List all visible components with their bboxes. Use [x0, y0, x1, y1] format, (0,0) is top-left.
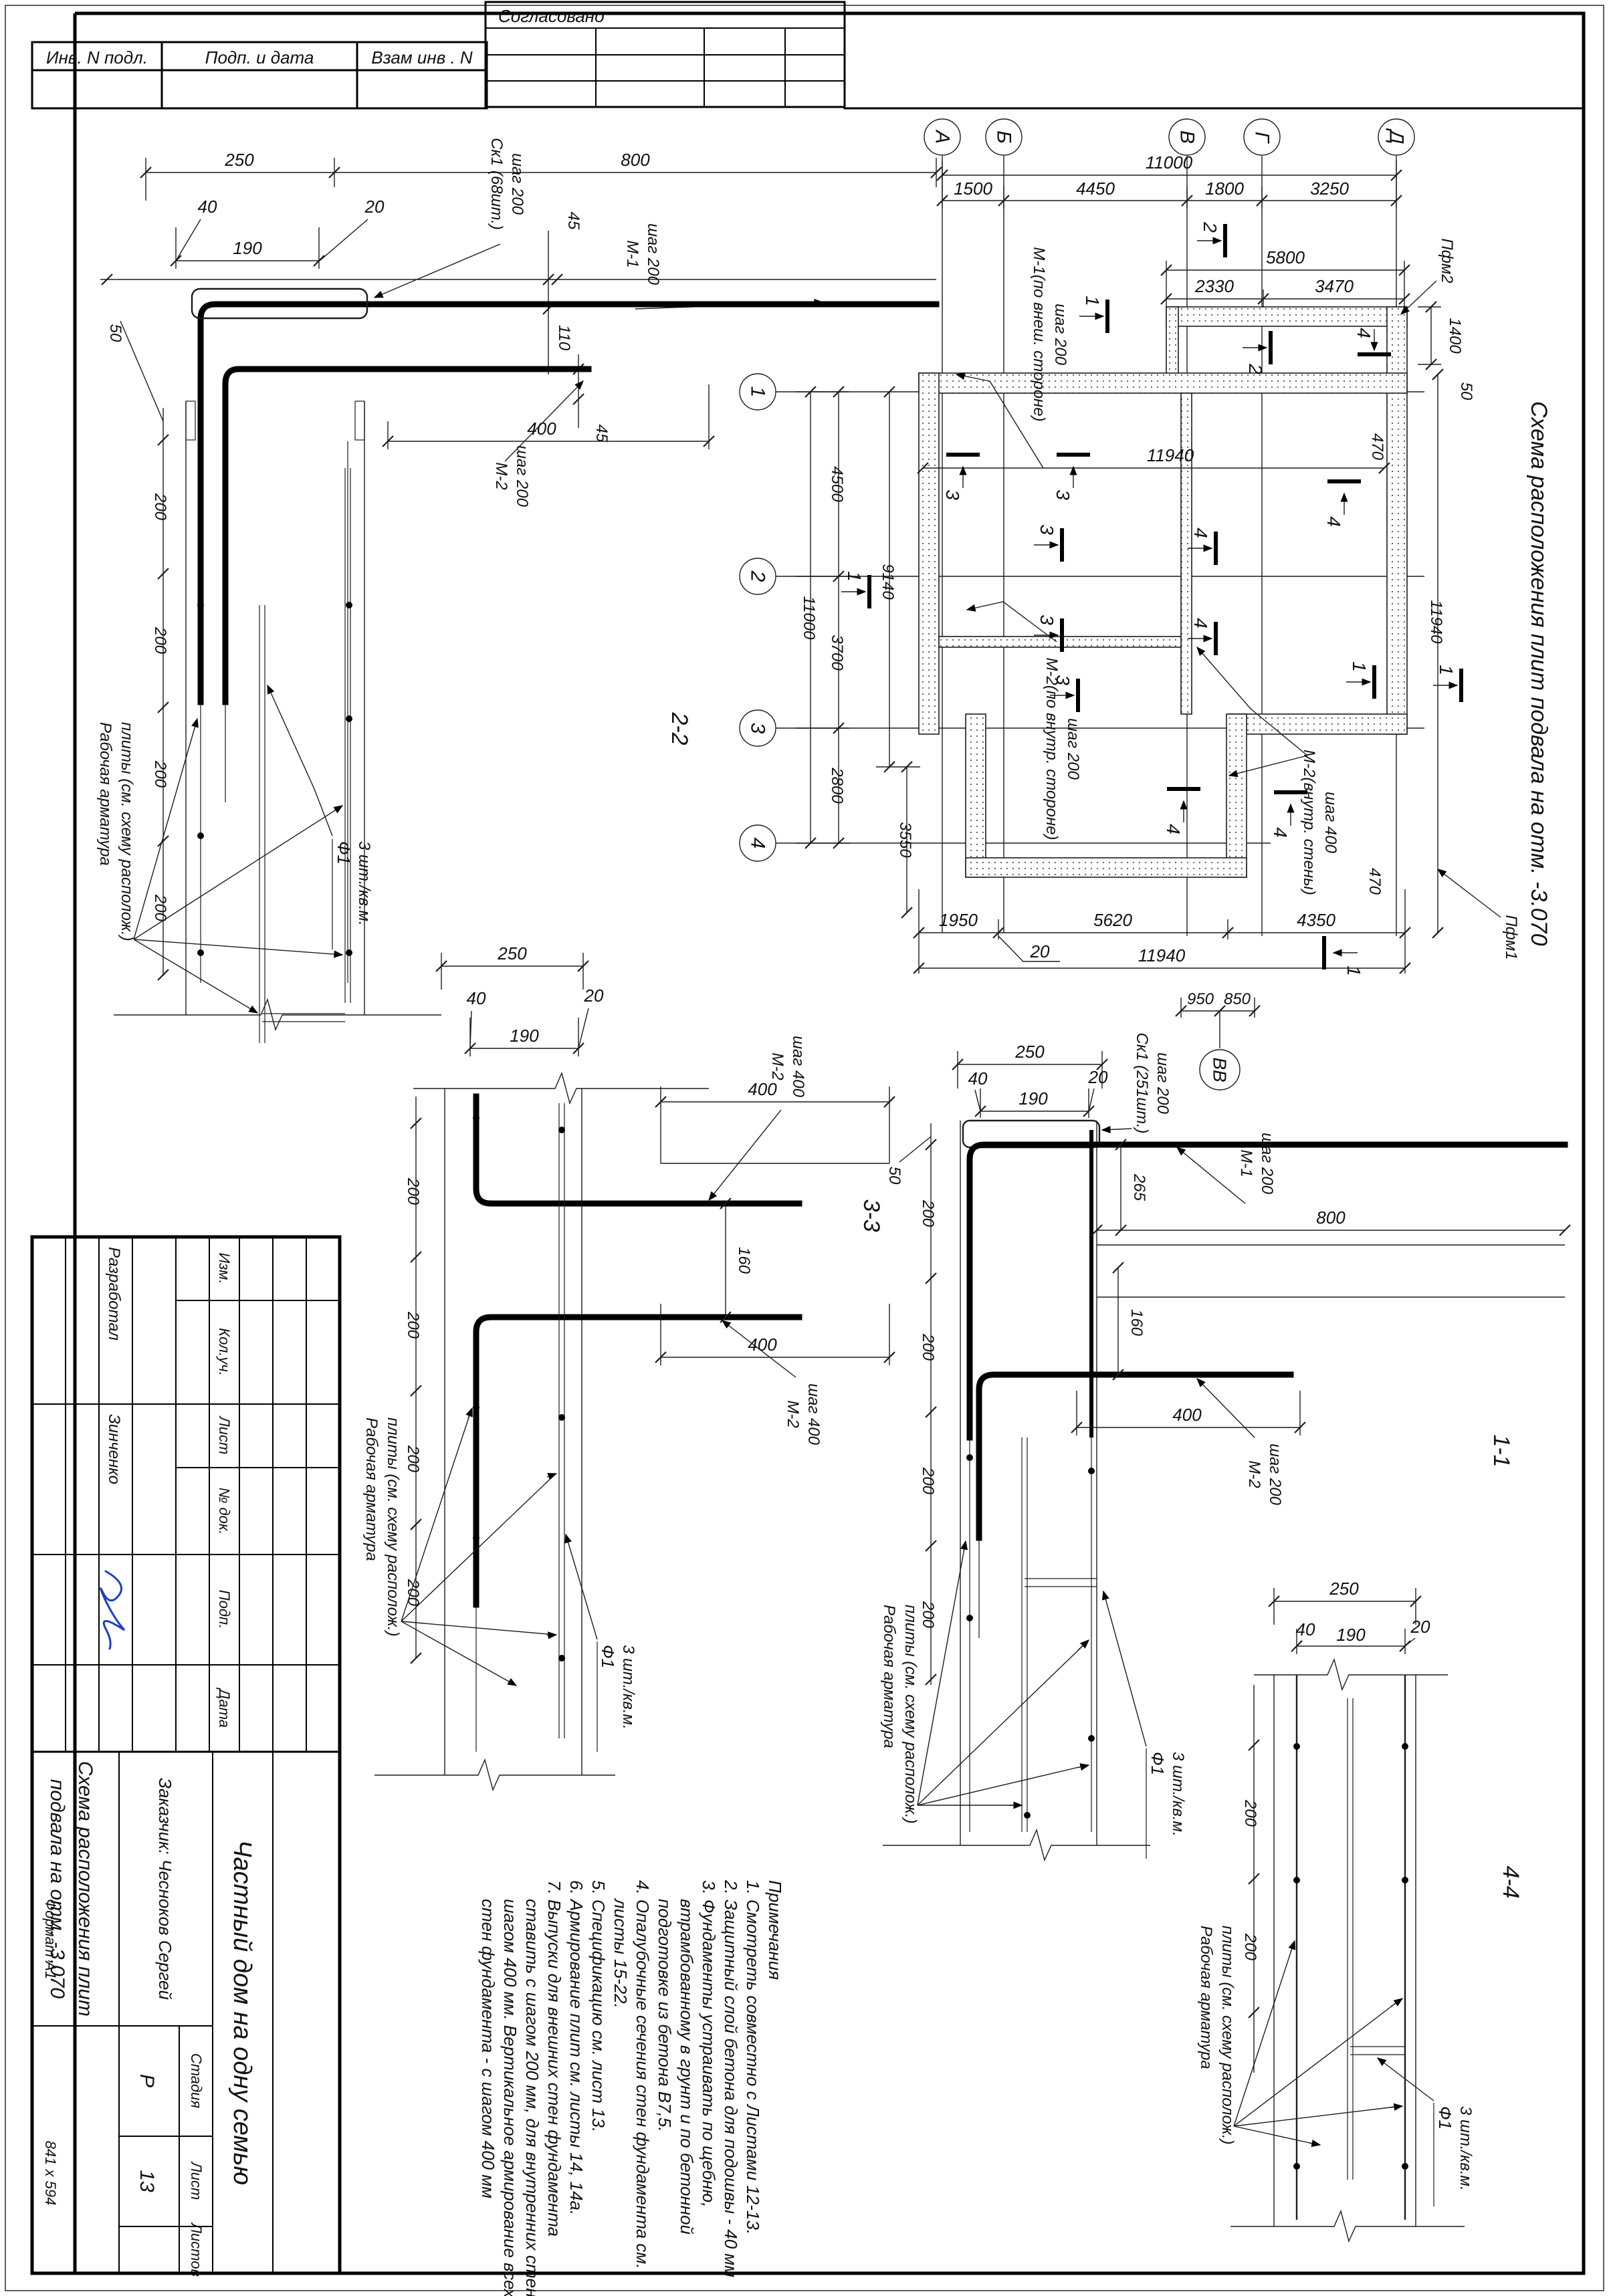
- drawing-sheet: Инв. N подл. Подп. и дата Взам инв . N С…: [0, 0, 1609, 2296]
- flag-2-block: 2: [1243, 331, 1271, 374]
- s33-m2l-line2: шаг 400: [804, 1383, 823, 1445]
- flag-3-c: 3: [1034, 524, 1062, 562]
- s44-f1qty: 3 шт./кв.м.: [1457, 2106, 1475, 2191]
- s11-bottom-labels: Рабочая арматура плиты (см. схему распол…: [880, 1541, 1187, 1859]
- s11-rab-line2: плиты (см. схему располож.): [901, 1605, 920, 1824]
- dim-left-seg3: 2800: [828, 767, 846, 804]
- notes-line: 1. Смотреть совместно с Листами 12-13.: [743, 1880, 763, 2234]
- dim-bot-seg1: 1950: [939, 910, 978, 930]
- s11-title: 1-1: [1489, 1434, 1514, 1467]
- s33-bottom-labels: Рабочая арматура плиты (см. схему распол…: [362, 1408, 637, 1752]
- section-2-2: 250 800 40 20 190 Ск1 (68шт.) шаг 200 М-…: [96, 138, 942, 1043]
- notes-block: Примечания 1. Смотреть совместно с Листа…: [478, 1879, 785, 2296]
- s33-rab-line2: плиты (см. схему располож.): [384, 1417, 402, 1637]
- s22-200d: 200: [151, 894, 169, 922]
- plan-dims-left: 11000 4500 3700 2800 9140 3550: [796, 386, 920, 918]
- section-4-4: 250 40 20 190 200 200 Рабочая арматура п…: [1197, 1579, 1523, 2241]
- s33-dim-160: 160: [735, 1247, 753, 1274]
- s11-dim-160: 160: [1128, 1309, 1146, 1337]
- s11-m1-line2: шаг 200: [1258, 1133, 1276, 1194]
- s22-m2-line1: М-2: [492, 462, 510, 489]
- s22-dim-20: 20: [364, 197, 385, 217]
- s33-200c: 200: [404, 1445, 422, 1473]
- notes-line: ставить с шагом 200 мм, для внутренних с…: [522, 1899, 542, 2296]
- flag-num: 3: [1053, 489, 1073, 500]
- dim-top-inner2: 3470: [1315, 276, 1354, 296]
- m1-ext-line2: шаг 200: [1051, 304, 1069, 365]
- s22-dim-50: 50: [106, 324, 124, 342]
- flag-num: 1: [1344, 965, 1364, 976]
- s44-f1: Ф1: [1435, 2106, 1455, 2130]
- s33-chain: 200 200 200 200: [404, 1097, 422, 1663]
- s44-200a: 200: [1241, 1799, 1259, 1827]
- s22-dims-top: 250 800 40 20 190: [140, 150, 942, 269]
- attribute-strips: Инв. N подл. Подп. и дата Взам инв . N: [32, 42, 487, 108]
- tb-sheets-label: Листов: [188, 2222, 205, 2277]
- dim-right-total: 11940: [1427, 600, 1445, 645]
- plan-vv-bubble: ВВ: [1210, 1057, 1230, 1082]
- s11-dim-250: 250: [1014, 1042, 1045, 1062]
- s11-dim-50: 50: [885, 1167, 903, 1185]
- strip-podp-label: Подп. и дата: [205, 47, 314, 68]
- plan-dims-right: 1400 50 11940 470 470: [1366, 302, 1475, 938]
- tb-doc-line2: подвала на отм. -3,070: [46, 1779, 68, 1999]
- s22-sk1-line1: Ск1 (68шт.): [488, 138, 506, 230]
- section-3-3: 250 40 20 190 400 400 160 М-2 шаг 400 М-…: [362, 943, 895, 1790]
- s22-200b: 200: [151, 626, 169, 655]
- m2-wall-line2: шаг 400: [1321, 792, 1339, 853]
- dim-bot-850: 850: [1224, 990, 1251, 1008]
- dim-left-seg2: 3700: [828, 635, 846, 671]
- s11-200a: 200: [919, 1199, 937, 1228]
- size-label: 841 х 594: [42, 2141, 59, 2206]
- approval-table: Согласовано: [486, 2, 845, 107]
- flag-num: 4: [1354, 328, 1374, 338]
- s11-f1: Ф1: [1148, 1752, 1168, 1775]
- s22-dim-190: 190: [233, 238, 262, 258]
- s33-geometry: [374, 1073, 799, 1790]
- s33-ground: [374, 1760, 615, 1790]
- m2-wall-line1: М-2(внутр. стены): [1300, 750, 1318, 895]
- s33-f1: Ф1: [598, 1645, 618, 1668]
- axis-row-4: 4: [747, 838, 769, 849]
- s22-bottom-labels: Рабочая арматура плиты (см. схему распол…: [96, 685, 373, 1013]
- flag-num: 1: [1349, 661, 1370, 672]
- s22-m1-line1: М-1: [623, 240, 641, 267]
- s44-dim-190: 190: [1336, 1625, 1366, 1645]
- flag-num: 4: [1270, 827, 1291, 838]
- dim-right-470a: 470: [1368, 433, 1386, 461]
- flag-num: 2: [1245, 363, 1266, 374]
- dim-left-total: 11000: [800, 596, 818, 641]
- s33-200b: 200: [404, 1311, 422, 1339]
- s44-bottom-labels: Рабочая арматура плиты (см. схему распол…: [1197, 1926, 1475, 2206]
- s33-title: 3-3: [859, 1199, 884, 1232]
- notes-line: листы 15-22.: [611, 1898, 631, 2008]
- notes-line: шагом 400 мм. Вертикальное армирование в…: [500, 1899, 520, 2296]
- dim-left-seg1: 4500: [828, 466, 846, 502]
- notes-line: 6. Армирование плит см. листы 14, 14а.: [566, 1880, 586, 2215]
- s22-dim-45b: 45: [593, 425, 611, 443]
- dim-right-470b: 470: [1366, 868, 1384, 895]
- dim-top-inner1: 2330: [1194, 276, 1234, 296]
- s11-200d: 200: [919, 1601, 937, 1629]
- s11-dims-top: 250 40 20 190 Ск1 (251шт.) шаг 200 50: [885, 1032, 1172, 1185]
- s22-dim-40: 40: [198, 197, 217, 217]
- s11-200b: 200: [919, 1333, 937, 1361]
- s11-dim-400: 400: [1172, 1405, 1202, 1425]
- s44-200b: 200: [1241, 1933, 1259, 1961]
- s44-ground: [1230, 2211, 1465, 2241]
- flag-num: 3: [1037, 614, 1057, 625]
- s11-dim-40: 40: [968, 1068, 988, 1088]
- s11-geometry: [883, 1121, 1565, 1860]
- plan-pfm1-label: Пфм1: [1502, 915, 1520, 959]
- strip-vzam-label: Взам инв . N: [371, 47, 473, 68]
- approval-title: Согласовано: [498, 6, 605, 26]
- s22-dim-250: 250: [224, 150, 254, 170]
- dim-bot-950: 950: [1187, 990, 1214, 1008]
- axis-row-1: 1: [747, 386, 769, 398]
- notes-line: 2. Защитный слой бетона для подошвы - 40…: [721, 1879, 741, 2277]
- axis-row-3: 3: [747, 723, 769, 734]
- s44-break-top: [1254, 1659, 1448, 1690]
- s11-dim-800: 800: [1316, 1208, 1346, 1228]
- flag-num: 4: [1163, 824, 1184, 834]
- tb-project-name: Частный дом на одну семью: [228, 1840, 256, 2185]
- s44-dim-250: 250: [1329, 1579, 1359, 1599]
- s33-dim-190: 190: [510, 1026, 539, 1046]
- flag-num: 3: [1053, 675, 1073, 685]
- flag-4-f: 4: [1163, 789, 1200, 834]
- tb-doc-line1: Схема расположения плит: [74, 1761, 96, 2017]
- axis-row-2: 2: [747, 570, 769, 582]
- notes-line: стен фундамента - с шагом 400 мм: [478, 1899, 498, 2198]
- s33-dims-top: 250 40 20 190: [436, 943, 604, 1056]
- s11-dim-190: 190: [1018, 1088, 1048, 1109]
- drawing-canvas: Инв. N подл. Подп. и дата Взам инв . N С…: [0, 0, 1609, 2296]
- tb-stage-value: Р: [136, 2074, 158, 2087]
- dim-top-inner: 5800: [1266, 247, 1305, 267]
- s22-rab-line1: Рабочая арматура: [96, 722, 114, 866]
- axis-col-a: А: [932, 129, 954, 144]
- dim-right-1400: 1400: [1446, 318, 1464, 354]
- s22-title: 2-2: [667, 711, 692, 745]
- plan-axis-row-bubbles: 1 2 3 4: [740, 374, 776, 861]
- flag-1-bottom: 1: [1324, 936, 1364, 976]
- tb-stage-label: Стадия: [188, 2053, 205, 2109]
- dim-top-total: 11000: [1146, 152, 1193, 173]
- s44-rab-line2: плиты (см. схему располож.): [1218, 1926, 1237, 2145]
- s22-dim-800: 800: [621, 150, 650, 170]
- s22-rab-line2: плиты (см. схему располож.): [118, 722, 136, 941]
- s22-dim-110: 110: [555, 325, 573, 351]
- flag-4-block: 4: [1354, 328, 1391, 354]
- dim-top-seg2: 4450: [1076, 179, 1115, 199]
- s11-sk1-line2: шаг 200: [1154, 1052, 1172, 1114]
- s33-bar-m2-upper: [476, 1097, 799, 1203]
- s22-f1qty: 3 шт./кв.м.: [355, 841, 373, 926]
- plan-title: Схема расположения плит подвала на отм. …: [1526, 401, 1551, 946]
- s44-title: 4-4: [1498, 1865, 1523, 1898]
- s22-labels: Ск1 (68шт.) шаг 200 М-1 шаг 200 45 110 4…: [106, 138, 823, 443]
- s33-dim-40: 40: [467, 988, 486, 1008]
- s11-dim-265: 265: [1130, 1173, 1148, 1201]
- s11-bar-m2: [979, 1375, 1291, 1538]
- flag-num: 3: [942, 489, 963, 500]
- s11-chain: 200 200 200 200: [919, 1123, 937, 1685]
- plan-pfm2-label: Пфм2: [1438, 238, 1456, 283]
- s44-rab-line1: Рабочая арматура: [1197, 1926, 1215, 2069]
- dim-top-seg3: 1800: [1205, 179, 1244, 199]
- s44-dim-40: 40: [1296, 1619, 1315, 1639]
- flag-num: 4: [1190, 618, 1211, 628]
- tb-col-podp: Подп.: [216, 1590, 233, 1629]
- flag-2-top: 2: [1197, 221, 1225, 257]
- dim-bot-20: 20: [1030, 941, 1050, 961]
- s11-ground: [883, 1830, 1150, 1860]
- s22-m1-line2: шаг 200: [644, 223, 662, 285]
- axis-col-g: Г: [1251, 132, 1273, 144]
- m1-ext-line1: М-1(по внеш. стороне): [1030, 247, 1048, 421]
- dim-top-seg1: 1500: [954, 179, 992, 199]
- flag-num: 3: [1037, 524, 1057, 535]
- s33-200d: 200: [404, 1579, 422, 1607]
- s33-200a: 200: [404, 1177, 422, 1206]
- s11-dim-20: 20: [1088, 1067, 1108, 1087]
- notes-line: подготовке из бетона В7,5.: [655, 1899, 675, 2132]
- s44-geometry: [1230, 1659, 1465, 2241]
- s22-f1: Ф1: [334, 841, 354, 865]
- flag-3-b: 3: [1053, 455, 1090, 500]
- tb-col-ndok: № док.: [216, 1488, 233, 1535]
- title-block: Изм. Кол.уч. Лист № док. Подп. Дата Разр…: [32, 1237, 340, 2277]
- s22-400-label: 400: [527, 419, 556, 439]
- flag-num: 1: [844, 571, 865, 582]
- s33-dim-250: 250: [497, 943, 527, 963]
- dim-left-3550: 3550: [896, 822, 914, 858]
- dim-bot-seg3: 4350: [1297, 910, 1335, 930]
- s22-200a: 200: [151, 493, 169, 521]
- notes-line: 7. Выпуски для внешних стен фундамента: [544, 1880, 564, 2236]
- s33-400-upper: 400: [748, 1079, 777, 1099]
- flag-3-a: 3: [942, 455, 980, 500]
- flag-4-c: 4: [1323, 481, 1361, 527]
- s11-rab-line1: Рабочая арматура: [880, 1605, 898, 1748]
- tb-col-izm: Изм.: [216, 1253, 233, 1284]
- dim-right-50: 50: [1457, 382, 1475, 400]
- s33-m2l-line1: М-2: [784, 1400, 802, 1427]
- plan-dims-top: 11000 1500 4450 1800 3250 5800 2330 3470: [937, 152, 1410, 308]
- dim-inner-11940: 11940: [1147, 445, 1194, 465]
- tb-sheet-value: 13: [136, 2170, 158, 2192]
- notes-line: 4. Опалубочные сечения стен фундамента с…: [633, 1880, 653, 2269]
- plan-axis-col-bubbles: А Б В Г Д: [924, 119, 1414, 155]
- flag-1-right1: 1: [1346, 661, 1374, 699]
- tb-developed-name: Зинченко: [105, 1414, 123, 1484]
- s22-dim-45a: 45: [564, 212, 582, 230]
- plan-view: А Б В Г Д 1 2 3 4 11000 1500 4450 1800 3…: [740, 119, 1551, 1090]
- flag-1-left: 1: [841, 571, 869, 608]
- dim-left-9140: 9140: [879, 564, 897, 600]
- tb-sheet-label: Лист: [188, 2161, 205, 2200]
- s22-bar-m1: [201, 304, 936, 702]
- s44-dim-20: 20: [1410, 1617, 1430, 1637]
- notes-line: 5. Спецификацию см. лист 13.: [588, 1880, 609, 2132]
- s22-chain: 200 200 200 200: [151, 408, 169, 980]
- tb-col-data: Дата: [216, 1687, 233, 1728]
- flag-1-top: 1: [1079, 296, 1107, 333]
- notes-heading: Примечания: [765, 1880, 785, 1980]
- axis-col-d: Д: [1386, 128, 1408, 144]
- s11-f1qty: 3 шт./кв.м.: [1169, 1752, 1187, 1837]
- flag-num: 1: [1436, 665, 1457, 675]
- dim-bot-total: 11940: [1138, 945, 1186, 965]
- flag-num: 4: [1323, 516, 1344, 527]
- dim-top-seg4: 3250: [1310, 179, 1349, 199]
- s33-rab-line1: Рабочая арматура: [362, 1417, 381, 1561]
- s11-m2-line1: М-2: [1245, 1460, 1263, 1488]
- title-block-headers: Изм. Кол.уч. Лист № док. Подп. Дата: [216, 1253, 233, 1728]
- s33-m2u-line1: М-2: [768, 1052, 786, 1080]
- s11-sk1-line1: Ск1 (251шт.): [1133, 1032, 1151, 1133]
- flag-num: 1: [1082, 296, 1103, 306]
- tb-col-list: Лист: [216, 1415, 233, 1455]
- tb-signature: [100, 1571, 124, 1649]
- tb-col-koluch: Кол.уч.: [216, 1328, 233, 1376]
- notes-line: втрамбованному в грунт и по бетонной: [677, 1899, 697, 2234]
- s11-200c: 200: [919, 1467, 937, 1495]
- plan-m1-ext-label: М-1(по внеш. стороне) шаг 200: [956, 247, 1069, 468]
- flag-num: 4: [1190, 528, 1211, 538]
- s22-ground: [114, 1000, 441, 1030]
- s33-dim-20: 20: [584, 986, 604, 1006]
- s44-chain: 200 200: [1241, 1685, 1259, 2073]
- m2-int-line2: шаг 200: [1064, 718, 1082, 780]
- s33-f1qty: 3 шт./кв.м.: [619, 1645, 637, 1730]
- plan-dim-interior: 11940: [918, 445, 1390, 473]
- flag-num: 2: [1200, 221, 1220, 233]
- s22-m2-line2: шаг 200: [513, 445, 531, 507]
- s44-dims-top: 250 40 20 190: [1269, 1579, 1430, 1654]
- s22-200c: 200: [151, 760, 169, 788]
- section-1-1: 250 40 20 190 Ск1 (251шт.) шаг 200 50 26…: [880, 1032, 1570, 1860]
- tb-client: Заказчик: Чесноков Сергей: [155, 1778, 175, 2000]
- axis-col-v: В: [1176, 130, 1198, 144]
- tb-developed-label: Разработал: [105, 1247, 123, 1341]
- s11-m2-line2: шаг 200: [1266, 1444, 1284, 1505]
- strip-inv-label: Инв. N подл.: [46, 47, 148, 68]
- s11-m1-line1: М-1: [1237, 1149, 1255, 1177]
- s33-m2u-line2: шаг 400: [789, 1036, 807, 1097]
- s22-sk1-line2: шаг 200: [508, 153, 526, 215]
- notes-line: 3. Фундаменты устраивать по щебню,: [699, 1880, 719, 2207]
- s33-bar-m2-lower: [476, 1317, 799, 1605]
- dim-bot-seg2: 5620: [1093, 910, 1132, 930]
- axis-col-b: Б: [993, 130, 1015, 144]
- s22-dim-400: 400 М-2 шаг 200: [383, 381, 714, 507]
